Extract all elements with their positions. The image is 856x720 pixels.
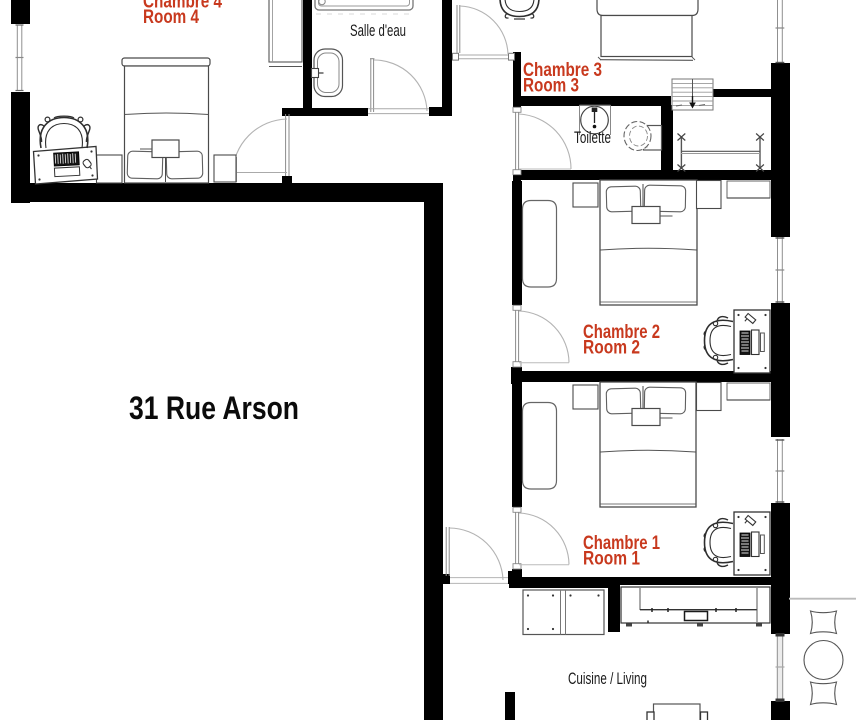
svg-text:Room 1: Room 1 [583,548,640,570]
svg-text:31 Rue Arson: 31 Rue Arson [129,390,299,426]
svg-text:Toilette: Toilette [574,129,611,147]
svg-text:Room 3: Room 3 [523,75,579,97]
svg-text:Salle d'eau: Salle d'eau [350,22,406,40]
svg-text:Cuisine / Living: Cuisine / Living [568,670,647,688]
svg-text:Room 4: Room 4 [143,6,199,28]
svg-text:Room 2: Room 2 [583,337,640,359]
